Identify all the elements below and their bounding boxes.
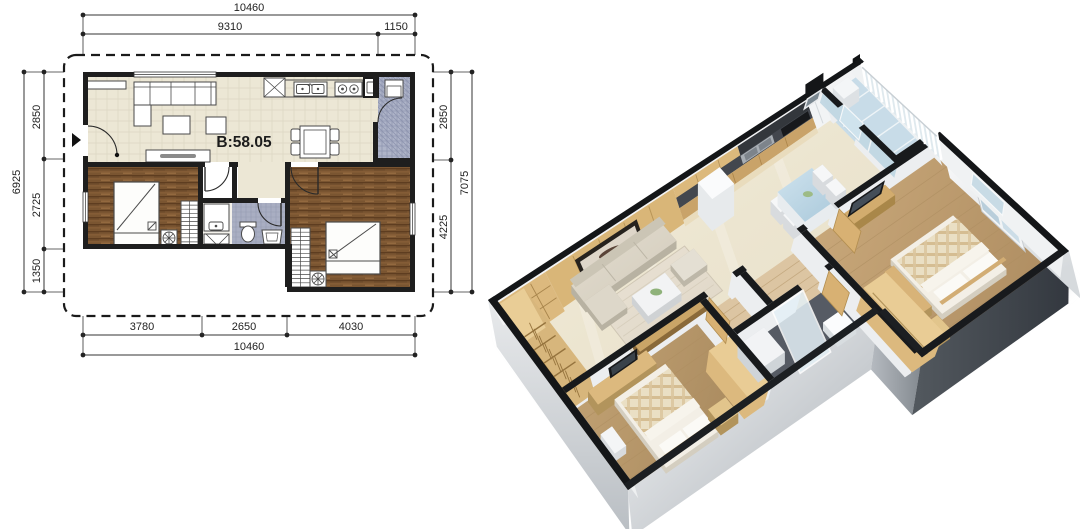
- svg-text:4225: 4225: [438, 215, 450, 239]
- svg-text:1150: 1150: [384, 21, 408, 33]
- svg-text:1350: 1350: [31, 259, 43, 283]
- svg-text:7075: 7075: [459, 171, 471, 195]
- svg-text:2850: 2850: [31, 105, 43, 129]
- svg-text:2650: 2650: [232, 321, 256, 333]
- svg-text:10460: 10460: [234, 341, 265, 353]
- svg-text:3780: 3780: [130, 321, 154, 333]
- svg-text:9310: 9310: [218, 21, 242, 33]
- svg-text:4030: 4030: [339, 321, 363, 333]
- svg-text:2850: 2850: [438, 105, 450, 129]
- svg-text:6925: 6925: [11, 170, 23, 194]
- svg-text:B:58.05: B:58.05: [216, 134, 272, 151]
- svg-text:10460: 10460: [234, 2, 265, 14]
- svg-text:2725: 2725: [31, 193, 43, 217]
